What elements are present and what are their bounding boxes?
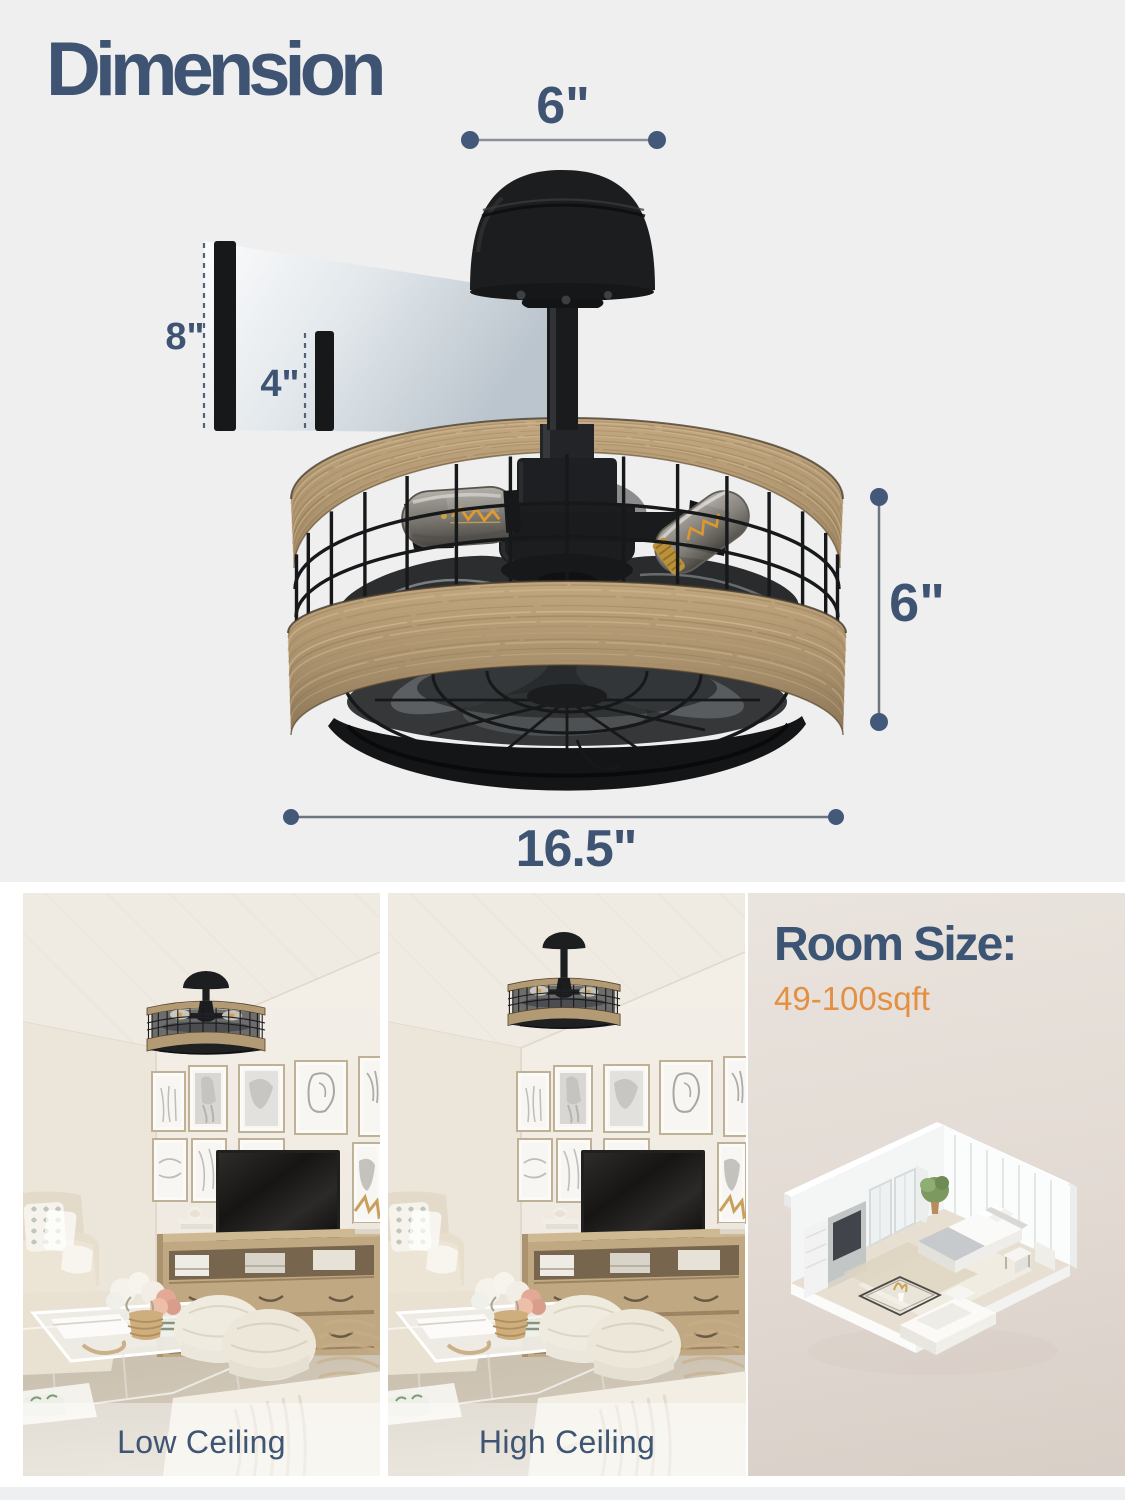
svg-text:Dimension: Dimension (46, 27, 382, 112)
svg-text:16.5": 16.5" (516, 820, 637, 878)
svg-text:8": 8" (165, 316, 204, 358)
svg-text:6": 6" (536, 77, 590, 135)
svg-text:4": 4" (260, 363, 299, 405)
svg-text:6": 6" (889, 573, 945, 633)
